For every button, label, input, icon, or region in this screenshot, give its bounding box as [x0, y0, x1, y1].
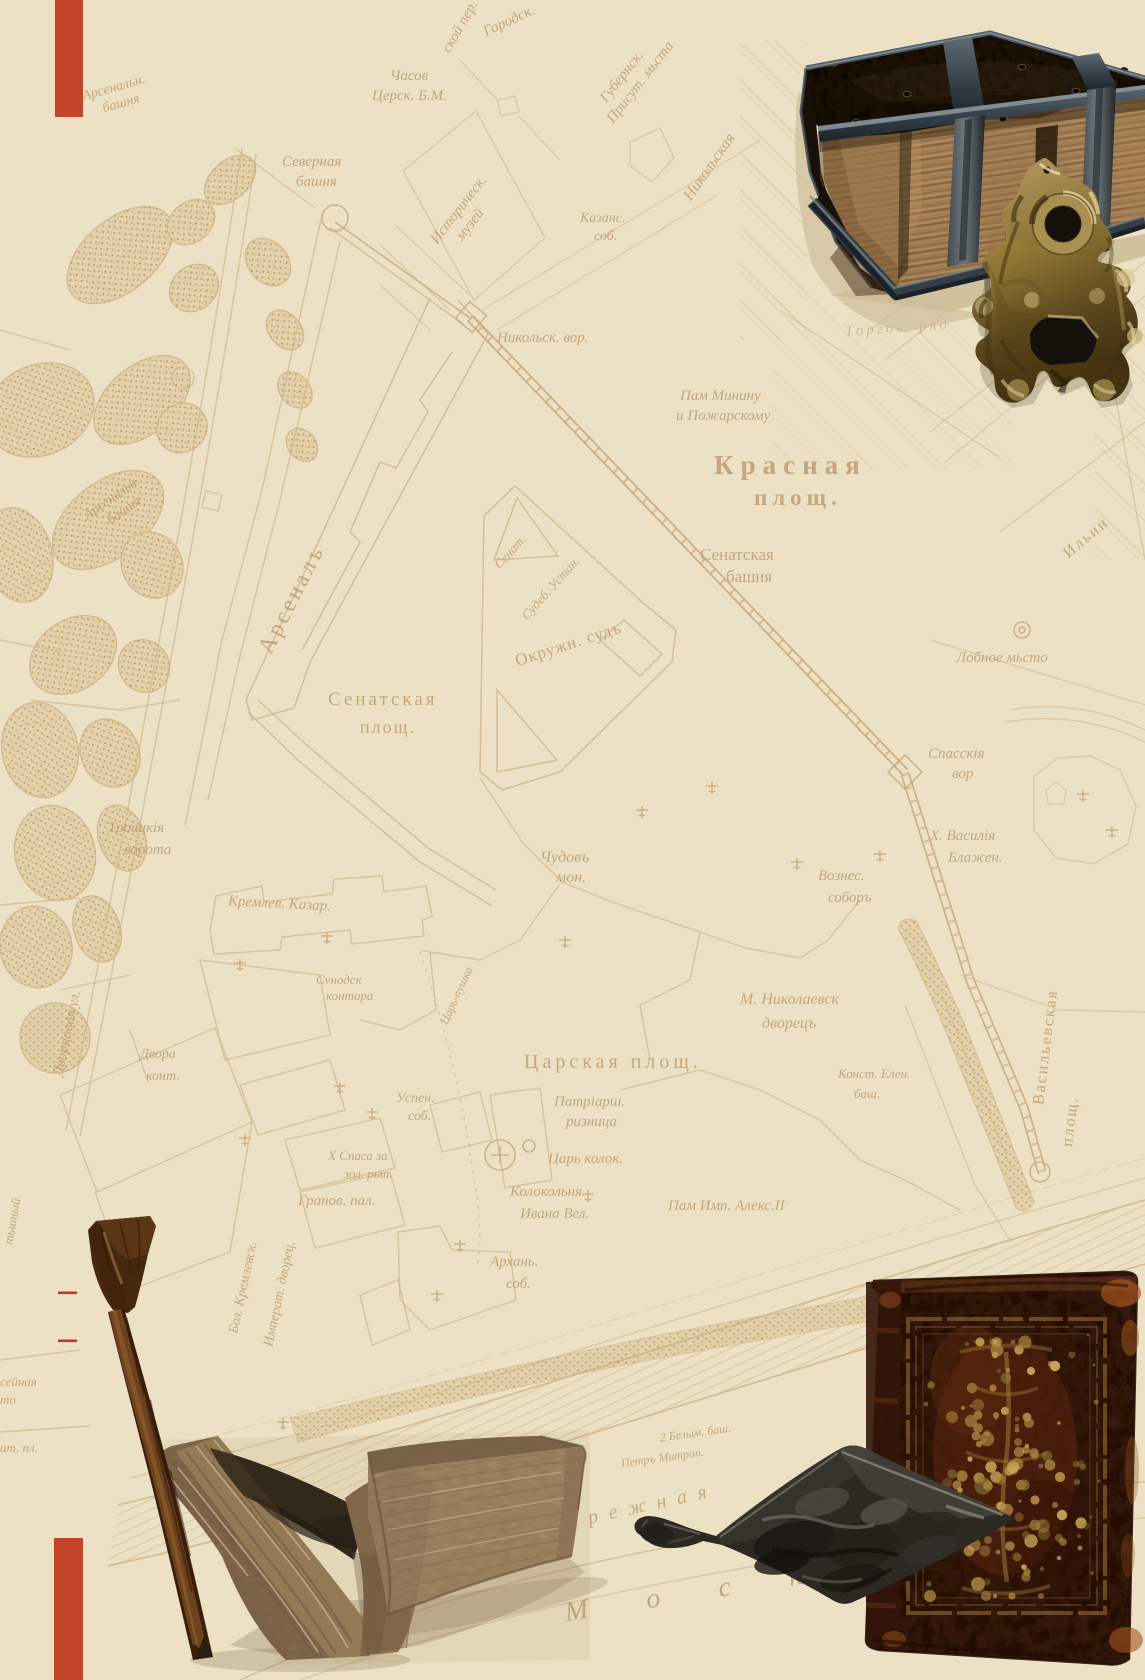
- svg-text:Красная: Красная: [714, 450, 867, 480]
- svg-text:2 Безым. баш.: 2 Безым. баш.: [659, 1421, 732, 1445]
- svg-text:Пам Имп. Алекс.II: Пам Имп. Алекс.II: [667, 1198, 786, 1214]
- svg-text:Северная: Северная: [282, 154, 341, 170]
- svg-text:тьшный: тьшный: [0, 1196, 23, 1245]
- svg-text:Сенатская: Сенатская: [700, 545, 774, 564]
- svg-text:Конст. Елен.: Конст. Елен.: [837, 1066, 910, 1081]
- svg-text:соборъ: соборъ: [828, 890, 872, 906]
- svg-text:Церск. Б.М.: Церск. Б.М.: [371, 88, 447, 104]
- svg-text:контора: контора: [326, 988, 374, 1003]
- svg-text:Патріарш.: Патріарш.: [553, 1094, 625, 1110]
- svg-text:Судеб. Устан.: Судеб. Устан.: [518, 553, 582, 622]
- svg-text:Спасскія: Спасскія: [928, 746, 985, 762]
- svg-text:Окружн. судъ: Окружн. судъ: [513, 618, 624, 670]
- svg-text:зол. рьш.: зол. рьш.: [343, 1166, 393, 1181]
- svg-text:Городск.: Городск.: [480, 2, 538, 40]
- svg-text:Часов: Часов: [390, 68, 429, 84]
- svg-text:Вознес.: Вознес.: [818, 868, 865, 884]
- svg-text:башня: башня: [296, 174, 337, 190]
- svg-text:соб.: соб.: [594, 229, 617, 244]
- svg-text:Васильевская: Васильевская: [1030, 988, 1061, 1106]
- svg-text:ворота: ворота: [124, 842, 171, 858]
- svg-text:Двора: Двора: [138, 1047, 176, 1062]
- svg-text:Императ. дворец.: Императ. дворец.: [261, 1240, 298, 1349]
- svg-text:Царская площ.: Царская площ.: [524, 1051, 702, 1073]
- svg-text:Казанс.: Казанс.: [579, 211, 625, 226]
- svg-text:ской пер.: ской пер.: [439, 0, 481, 55]
- svg-text:площ.: площ.: [360, 717, 416, 737]
- svg-text:Бол. Кремлевск.: Бол. Кремлевск.: [226, 1240, 260, 1336]
- svg-text:сейная: сейная: [0, 1374, 37, 1389]
- svg-text:Архань.: Архань.: [489, 1254, 538, 1270]
- svg-text:Гранов. пал.: Гранов. пал.: [297, 1193, 375, 1209]
- svg-text:ризница: ризница: [565, 1114, 617, 1130]
- svg-text:Х. Василія: Х. Василія: [929, 828, 995, 844]
- svg-text:Царь-пушка: Царь-пушка: [436, 964, 475, 1027]
- svg-text:башня: башня: [726, 567, 772, 586]
- svg-text:М. Николаевск: М. Николаевск: [739, 991, 839, 1008]
- svg-text:вор: вор: [952, 766, 974, 782]
- svg-text:Никольская: Никольская: [680, 130, 739, 204]
- svg-text:соб.: соб.: [408, 1109, 431, 1124]
- svg-text:Никольск. вор.: Никольск. вор.: [496, 330, 589, 346]
- svg-text:Х Спаса за: Х Спаса за: [327, 1148, 388, 1163]
- svg-text:мон.: мон.: [555, 869, 586, 886]
- svg-text:то: то: [0, 1392, 16, 1407]
- svg-text:Сvнодск: Сvнодск: [316, 972, 363, 987]
- svg-text:баш.: баш.: [854, 1086, 880, 1101]
- svg-text:Сенатская: Сенатская: [328, 689, 438, 710]
- svg-text:Царь колок.: Царь колок.: [547, 1151, 623, 1167]
- svg-text:Петръ Митроп.: Петръ Митроп.: [619, 1445, 705, 1471]
- svg-text:соб.: соб.: [506, 1276, 531, 1292]
- svg-text:и Пожарскому: и Пожарскому: [676, 408, 771, 424]
- svg-text:Арсеналъ: Арсеналъ: [253, 540, 329, 657]
- svg-text:дворецъ: дворецъ: [762, 1015, 816, 1032]
- svg-text:конт.: конт.: [146, 1069, 180, 1084]
- svg-text:Чудовъ: Чудовъ: [540, 849, 589, 866]
- svg-text:Успен.: Успен.: [396, 1091, 435, 1106]
- svg-text:Колокольня: Колокольня: [509, 1184, 582, 1200]
- svg-text:ат. пл.: ат. пл.: [0, 1440, 38, 1455]
- svg-text:площ.: площ.: [754, 485, 842, 510]
- svg-text:Троицкія: Троицкія: [108, 820, 164, 836]
- svg-text:площ.: площ.: [1059, 1095, 1082, 1148]
- svg-text:Лобное мьсто: Лобное мьсто: [955, 650, 1048, 666]
- svg-text:Ивана Вел.: Ивана Вел.: [519, 1206, 589, 1222]
- svg-text:Пам Минину: Пам Минину: [679, 388, 761, 404]
- svg-text:Блажен.: Блажен.: [947, 850, 1003, 866]
